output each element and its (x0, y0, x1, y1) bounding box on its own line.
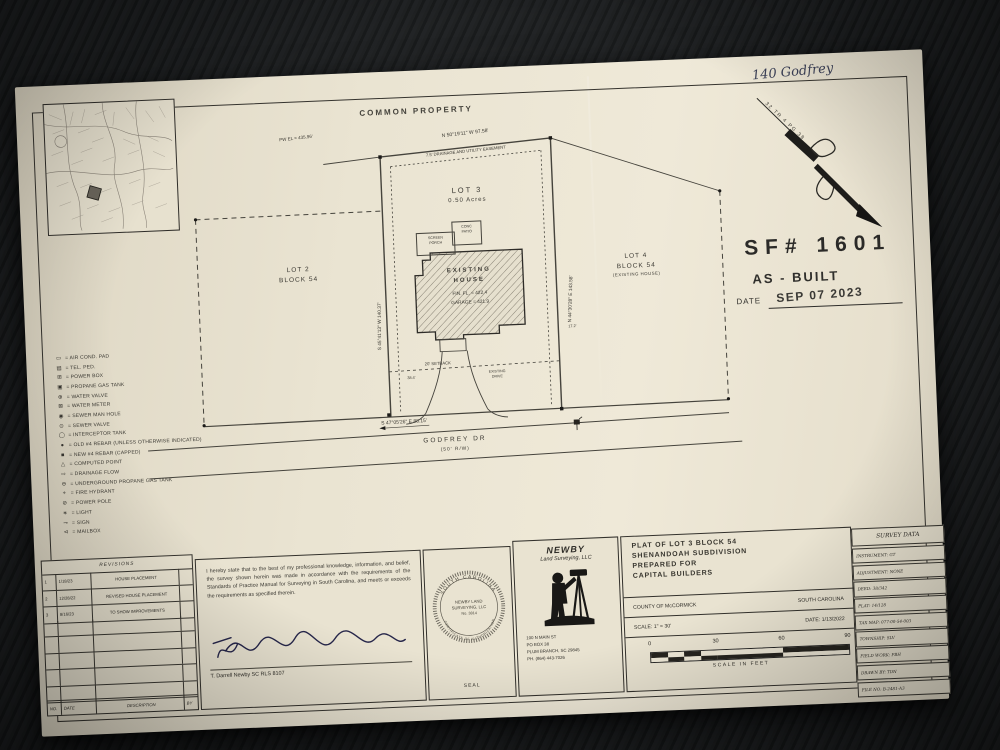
legend-item-label: = MAILBOX (72, 528, 101, 535)
legend-item-label: = TEL. PED. (65, 364, 95, 371)
revisions-footer-by: BY (183, 695, 198, 710)
north-arrow: 32 TR 4 PG 38 (751, 89, 892, 235)
seal-arc-bottom: CERTIFICATE OF AUTHORIZATION (443, 618, 496, 642)
legend-item-label: = INTERCEPTOR TANK (68, 430, 126, 438)
firm-box: NEWBY Land Surveying, LLC 100 N MAIN ST … (512, 536, 624, 696)
seal-box: SOUTH CAROLINA CERTIFICATE OF AUTHORIZAT… (423, 546, 517, 701)
vicinity-map (43, 99, 180, 236)
scale-tick-0: 0 (640, 641, 660, 648)
stamp-date-label: DATE (736, 296, 761, 306)
plat-paper: 32 TR 4 PG 38 COMMON PROPERTY 140 Godfre… (15, 49, 949, 736)
survey-data-row: TOWNSHIP: SLV (855, 628, 949, 647)
survey-data-row: FILE NO: B-2481-A3 (857, 678, 951, 697)
subject-lot-marker (87, 186, 101, 200)
graphic-scale: 0 30 60 90 SCALE IN FEET (625, 628, 856, 692)
scale-tick-30: 30 (705, 638, 725, 645)
certification-text: I hereby state that to the best of my pr… (206, 559, 411, 600)
survey-data-rows: INSTRUMENT: GTADJUSTMENT: NONEDEED: 38/3… (852, 545, 951, 699)
title-block: PLAT OF LOT 3 BLOCK 54 SHENANDOAH SUBDIV… (620, 527, 857, 693)
legend-symbol-icon: ■ (58, 452, 67, 458)
survey-data-row: FIELD WORK: FBH (856, 645, 950, 664)
legend-symbol-icon: △ (59, 462, 68, 468)
seal-center-line3: No. 3814 (461, 611, 477, 616)
legend-item-label: = SEWER VALVE (68, 421, 110, 429)
legend-symbol-icon: ⌖ (60, 490, 69, 497)
survey-data-row: INSTRUMENT: GT (852, 545, 946, 564)
revisions-footer-description: DESCRIPTION (95, 696, 184, 714)
legend-item-label: = FIRE HYDRANT (71, 489, 115, 497)
survey-data-title: SURVEY DATA (851, 525, 945, 547)
survey-data-row: DRAWN BY: TDN (857, 661, 951, 680)
svg-text:CERTIFICATE OF AUTHORIZATION: CERTIFICATE OF AUTHORIZATION (443, 618, 496, 642)
legend-item-label: = PROPANE GAS TANK (66, 382, 124, 390)
legend-symbol-icon: ⊕ (56, 394, 65, 400)
firm-address-line4: PH. (864) 443-7026 (527, 654, 580, 663)
revisions-footer-date: DATE (61, 699, 97, 714)
legend-symbol-icon: ▤ (54, 365, 63, 371)
legend-symbol-icon: ⊠ (56, 404, 65, 410)
legend-item-label: = SEWER MAN HOLE (67, 411, 121, 419)
legend-symbol-icon: ∗ (61, 510, 70, 516)
lot2-label: LOT 2 BLOCK 54 (251, 264, 347, 287)
survey-data-row: DEED: 38/342 (853, 578, 947, 597)
legend-item-label: = POWER BOX (66, 373, 104, 381)
legend-item-label: = LIGHT (72, 509, 93, 516)
mailbox-symbol (574, 417, 583, 430)
vicinity-map-sketch (44, 100, 176, 232)
legend-item-label: = POWER POLE (71, 499, 112, 507)
legend-item-label: = AIR COND. PAD (65, 353, 109, 361)
revisions-footer-no: NO. (48, 701, 62, 716)
survey-data-row: ADJUSTMENT: NONE (853, 561, 947, 580)
dimension-38-4: 38.4' (407, 376, 415, 380)
lot4-label: LOT 4 BLOCK 54 (EXISTING HOUSE) (588, 249, 684, 279)
legend-symbol-icon: ● (58, 442, 67, 448)
legend-symbol-icon: ◯ (57, 433, 66, 439)
surveyor-logo-icon (537, 564, 598, 630)
seal-center-line2: SURVEYING, LLC (452, 604, 487, 610)
bearing-left: S 45°41'13" W 140.37' (377, 215, 383, 350)
revisions-empty-rows (44, 615, 197, 704)
revision-date: 1/18/23 (55, 573, 91, 590)
seal-arc-top: SOUTH CAROLINA (439, 573, 497, 596)
legend-symbol-icon: ⊸ (61, 520, 70, 526)
conc-patio-label: CONC PATIO (452, 224, 481, 235)
legend-item-label: = WATER METER (67, 402, 111, 410)
north-arrow-note: 32 TR 4 PG 38 (764, 101, 806, 142)
certificate-seal: SOUTH CAROLINA CERTIFICATE OF AUTHORIZAT… (427, 559, 511, 658)
certification-box: I hereby state that to the best of my pr… (195, 550, 427, 710)
legend-symbol-icon: ⊘ (60, 501, 69, 507)
survey-data-row: TAX MAP: 077-00-54-003 (855, 611, 949, 630)
photo-of-survey-plat: 32 TR 4 PG 38 COMMON PROPERTY 140 Godfre… (0, 0, 1000, 750)
surveyor-name: T. Darrell Newby SC RLS 8107 (211, 671, 285, 680)
revision-number: 1 (42, 574, 56, 590)
surveyor-signature (209, 621, 410, 667)
screen-porch-label: SCREEN PORCH (416, 235, 454, 246)
seal-caption: SEAL (429, 681, 515, 691)
legend: ▭ = AIR COND. PAD ▤ = TEL. PED. ⊞ = POWE… (54, 346, 252, 538)
survey-data-block: SURVEY DATA INSTRUMENT: GTADJUSTMENT: NO… (851, 523, 951, 687)
revision-date: 12/28/22 (56, 589, 92, 606)
scale-tick-60: 60 (771, 635, 791, 642)
legend-symbol-icon: ◉ (56, 413, 65, 419)
legend-item-label: = COMPUTED POINT (70, 460, 123, 468)
legend-symbol-icon: ⊞ (55, 375, 64, 381)
legend-item-label: = SIGN (72, 519, 90, 526)
dimension-17-2: 17.2' (568, 324, 576, 328)
survey-data-row: PLAT: 14/128 (854, 595, 948, 614)
revision-by (178, 568, 193, 584)
legend-symbol-icon: ⊲ (61, 530, 70, 536)
svg-text:SOUTH CAROLINA: SOUTH CAROLINA (439, 573, 497, 596)
legend-symbol-icon: ⇨ (59, 472, 68, 478)
legend-item-label: = DRAINAGE FLOW (70, 469, 119, 477)
revision-number: 2 (43, 591, 57, 607)
revision-by (179, 585, 194, 601)
legend-symbol-icon: ⊖ (59, 481, 68, 487)
existing-drive-label: EXISTING DRIVE (479, 369, 515, 380)
firm-address: 100 N MAIN ST PO BOX 38 PLUM BRANCH, SC … (526, 633, 580, 663)
revisions-table: REVISIONS 1 1/18/23 HOUSE PLACEMENT 2 12… (41, 554, 199, 716)
legend-item-label: = WATER VALVE (67, 392, 108, 400)
legend-symbol-icon: ⊙ (57, 423, 66, 429)
legend-symbol-icon: ▣ (55, 384, 64, 390)
plat-title: PLAT OF LOT 3 BLOCK 54 SHENANDOAH SUBDIV… (621, 528, 852, 598)
legend-symbol-icon: ▭ (54, 355, 63, 361)
